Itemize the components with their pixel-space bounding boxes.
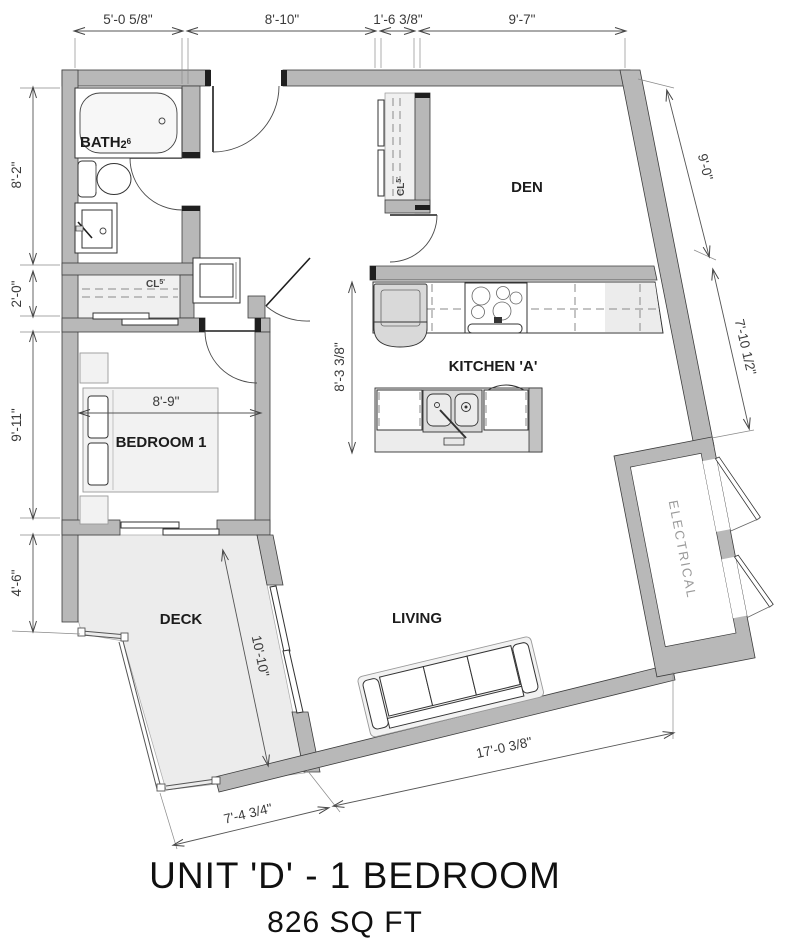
den-door	[390, 215, 437, 262]
entry-door	[213, 86, 279, 152]
dim-living-width: 17'-0 3/8"	[475, 734, 534, 761]
dim-top-1: 5'-0 5/8"	[103, 12, 153, 27]
dim-left-4: 4'-6"	[9, 569, 24, 596]
bath-door	[130, 158, 182, 210]
plan-area: 826 SQ FT	[267, 906, 423, 939]
nightstand	[80, 353, 108, 383]
deck-label: DECK	[160, 611, 203, 628]
bath-sink	[75, 203, 117, 253]
dim-right-1: 9'-0"	[695, 152, 716, 182]
den-label: DEN	[511, 179, 543, 196]
toilet	[78, 161, 131, 197]
dim-left-2: 2'-0"	[9, 280, 24, 307]
dim-left-3: 9'-11"	[9, 408, 24, 442]
dim-left-1: 8'-2"	[9, 161, 24, 188]
dim-kitchen-depth: 8'-3 3/8"	[332, 342, 347, 392]
floor-plan-page: ELECTRICAL	[0, 0, 787, 949]
refrigerator	[374, 284, 427, 347]
bedroom-label: BEDROOM 1	[116, 434, 207, 451]
bedroom-deck-sliding-door	[121, 522, 219, 535]
stove	[465, 283, 527, 333]
living-label: LIVING	[392, 610, 442, 627]
floor-plan-drawing: ELECTRICAL	[0, 0, 787, 949]
kitchen-label: KITCHEN 'A'	[449, 358, 538, 375]
dim-right-2: 7'-10 1/2"	[732, 318, 759, 377]
dim-bedroom-width: 8'-9"	[153, 394, 180, 409]
entry-closet-door	[378, 100, 384, 196]
kitchen-island	[375, 385, 542, 452]
bedroom-door	[205, 331, 257, 383]
bedroom-closet-floor	[78, 270, 180, 318]
dim-top-3: 1'-6 3/8"	[373, 12, 423, 27]
washer-unit	[193, 258, 240, 303]
dim-top-4: 9'-7"	[509, 12, 536, 27]
nightstand	[80, 496, 108, 524]
electrical-room: ELECTRICAL	[614, 431, 787, 677]
dim-top-2: 8'-10"	[265, 12, 300, 27]
plan-title: UNIT 'D' - 1 BEDROOM	[149, 855, 561, 896]
laundry-closet-door	[266, 258, 310, 321]
